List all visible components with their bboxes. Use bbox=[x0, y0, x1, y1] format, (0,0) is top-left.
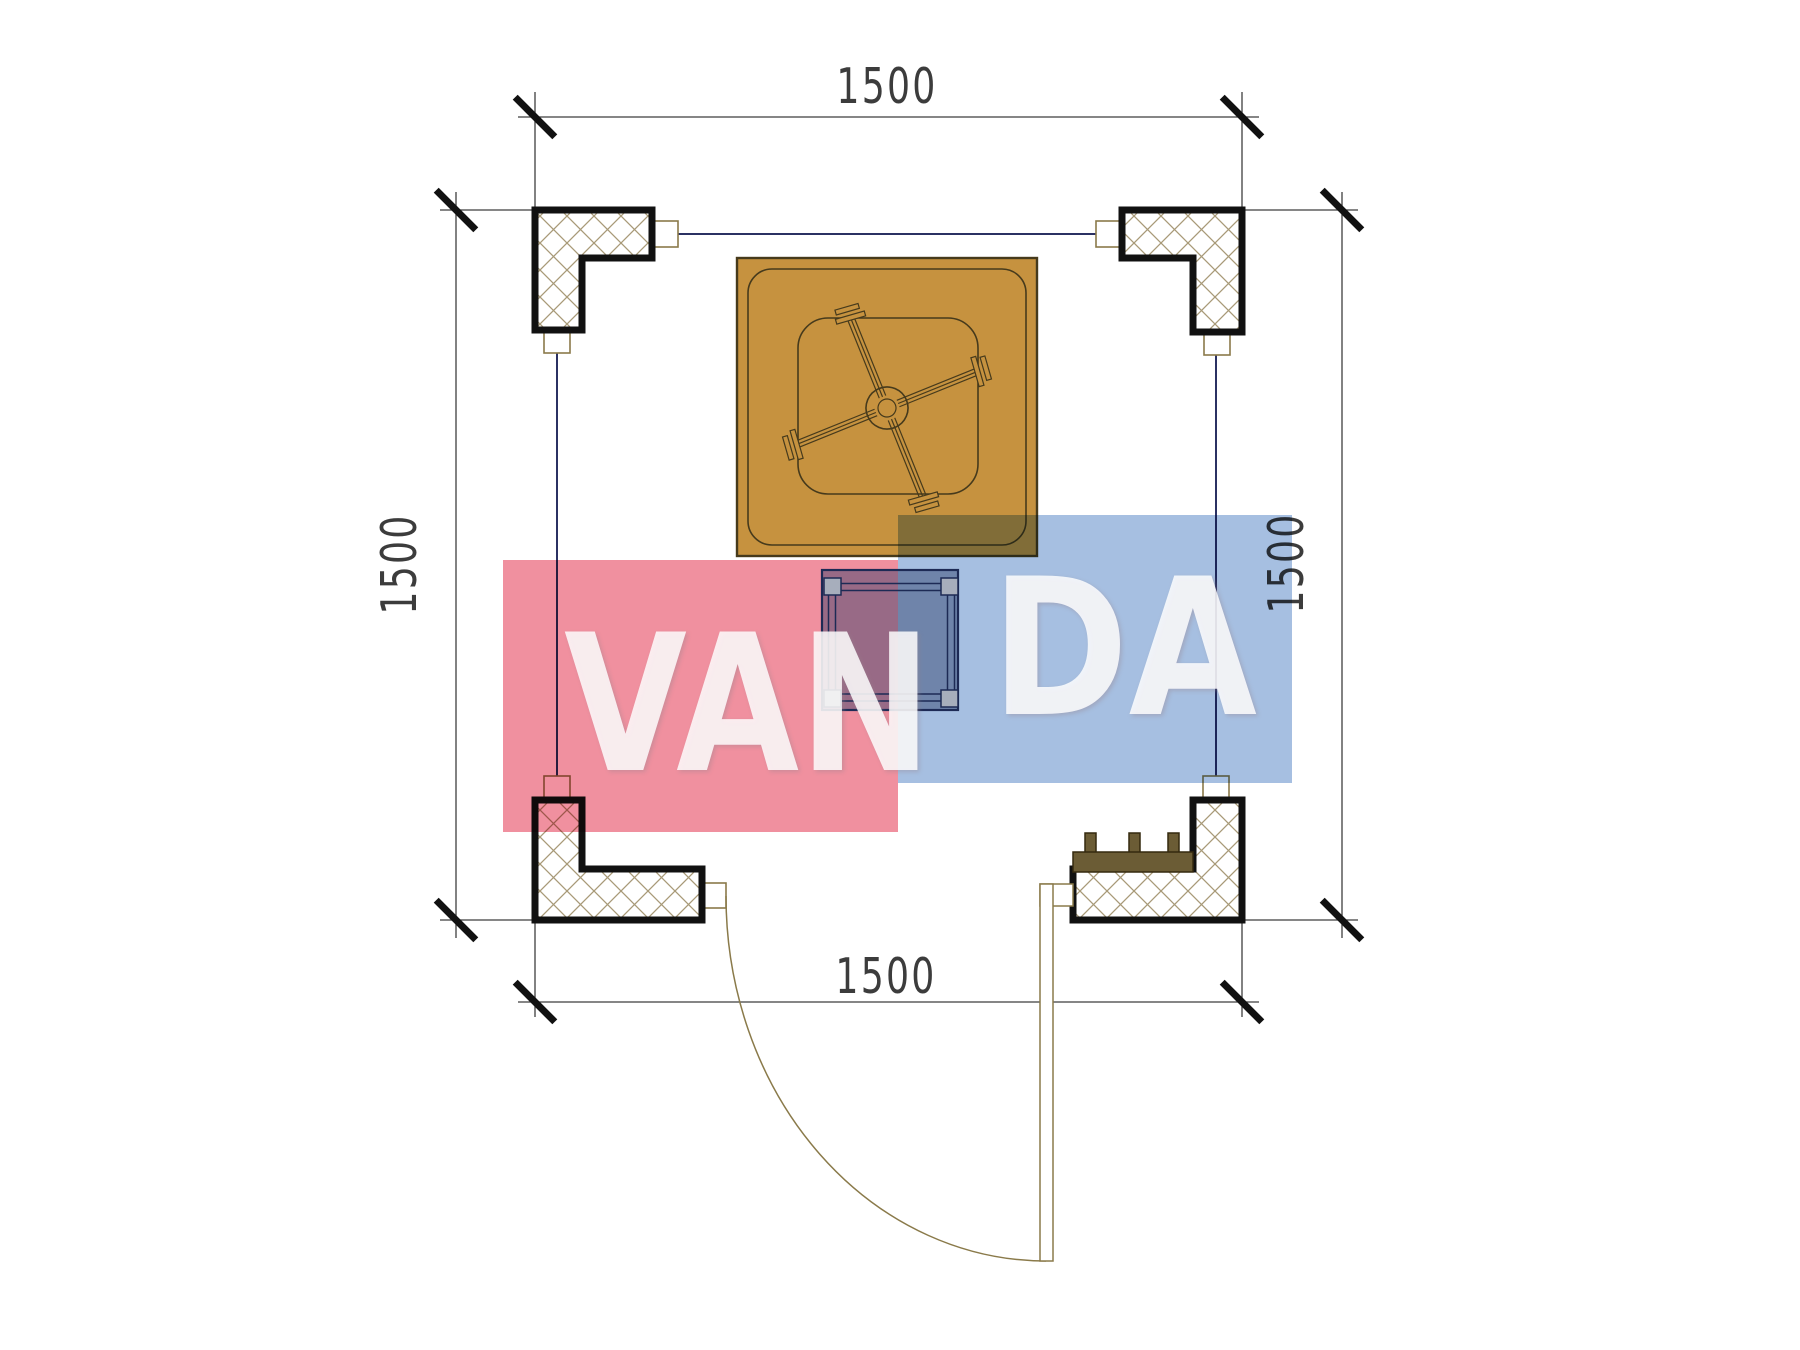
watermark-text-layer: VAN DA bbox=[0, 0, 1800, 1350]
watermark-text-van: VAN bbox=[564, 594, 932, 815]
watermark-text-da: DA bbox=[991, 538, 1257, 759]
floor-plan-canvas: 1500 1500 1500 1500 bbox=[0, 0, 1800, 1350]
